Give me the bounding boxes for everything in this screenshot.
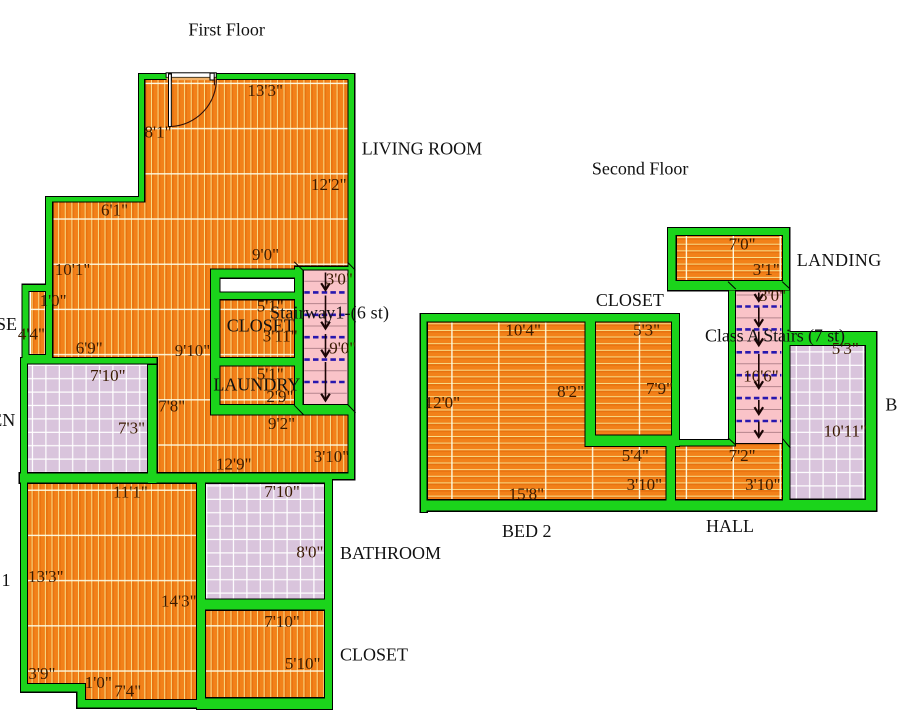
svg-text:5'3": 5'3" [633, 321, 660, 340]
svg-text:5'4": 5'4" [622, 446, 649, 465]
svg-text:Class A Stairs (7 st): Class A Stairs (7 st) [705, 326, 845, 347]
svg-text:5'10": 5'10" [285, 654, 321, 673]
svg-text:9'0": 9'0" [252, 245, 279, 264]
svg-text:2'9": 2'9" [266, 387, 293, 406]
svg-text:8'2": 8'2" [557, 382, 584, 401]
svg-text:9'2": 9'2" [268, 414, 295, 433]
svg-text:13'3": 13'3" [247, 81, 283, 100]
svg-text:8'0": 8'0" [296, 543, 323, 562]
svg-text:CLOSET: CLOSET [596, 290, 664, 310]
svg-text:7'2": 7'2" [729, 446, 756, 465]
svg-text:15'8": 15'8" [509, 485, 545, 504]
svg-text:LANDING: LANDING [797, 250, 882, 270]
svg-text:1'0": 1'0" [85, 673, 112, 692]
svg-text:3'10": 3'10" [314, 447, 350, 466]
svg-text:6'9": 6'9" [76, 339, 103, 358]
svg-text:KITCHEN: KITCHEN [0, 410, 15, 430]
svg-text:5'3": 5'3" [832, 339, 859, 358]
svg-text:3'10": 3'10" [745, 475, 781, 494]
svg-text:3'9": 3'9" [28, 664, 55, 683]
svg-text:7'9": 7'9" [646, 379, 673, 398]
svg-text:7'0": 7'0" [729, 234, 756, 253]
svg-text:7'10": 7'10" [264, 482, 300, 501]
svg-text:5'1": 5'1" [257, 297, 284, 316]
svg-text:14'3": 14'3" [161, 592, 197, 611]
svg-text:7'4": 7'4" [114, 681, 141, 700]
svg-text:10'4": 10'4" [505, 321, 541, 340]
svg-text:CLOSET: CLOSET [340, 645, 408, 665]
svg-text:3'10": 3'10" [627, 475, 663, 494]
svg-text:7'8": 7'8" [158, 397, 185, 416]
svg-text:9'0": 9'0" [329, 339, 356, 358]
svg-text:Second Floor: Second Floor [592, 159, 689, 179]
svg-text:10'6": 10'6" [743, 367, 779, 386]
svg-text:6'1": 6'1" [101, 201, 128, 220]
svg-text:BED 2: BED 2 [502, 521, 552, 541]
svg-text:13'3": 13'3" [28, 567, 64, 586]
svg-text:4'4": 4'4" [18, 324, 45, 343]
svg-text:12'2": 12'2" [311, 175, 347, 194]
svg-text:10'11": 10'11" [824, 422, 867, 441]
svg-text:9'10": 9'10" [175, 341, 211, 360]
svg-text:First Floor: First Floor [188, 20, 265, 40]
svg-text:5'1": 5'1" [257, 365, 284, 384]
svg-text:3'1": 3'1" [753, 260, 780, 279]
svg-text:HALL: HALL [706, 516, 754, 536]
svg-text:7'10": 7'10" [90, 366, 126, 385]
svg-text:12'0": 12'0" [425, 393, 461, 412]
svg-text:3'0": 3'0" [759, 286, 786, 305]
svg-text:12'9": 12'9" [216, 455, 252, 474]
svg-text:LIVING ROOM: LIVING ROOM [362, 139, 483, 159]
svg-text:3'0": 3'0" [326, 270, 353, 289]
svg-text:1'0": 1'0" [40, 291, 67, 310]
svg-text:11'1": 11'1" [113, 483, 148, 502]
svg-text:SE: SE [0, 314, 17, 334]
svg-text:8'1": 8'1" [145, 123, 172, 142]
svg-text:BED 1: BED 1 [0, 570, 11, 590]
svg-text:3'11": 3'11" [263, 327, 298, 346]
svg-text:BATHROOM: BATHROOM [340, 543, 441, 563]
svg-text:7'10": 7'10" [264, 612, 300, 631]
svg-text:7'3": 7'3" [118, 419, 145, 438]
svg-text:BATH: BATH [885, 395, 897, 415]
svg-text:10'1": 10'1" [55, 260, 91, 279]
